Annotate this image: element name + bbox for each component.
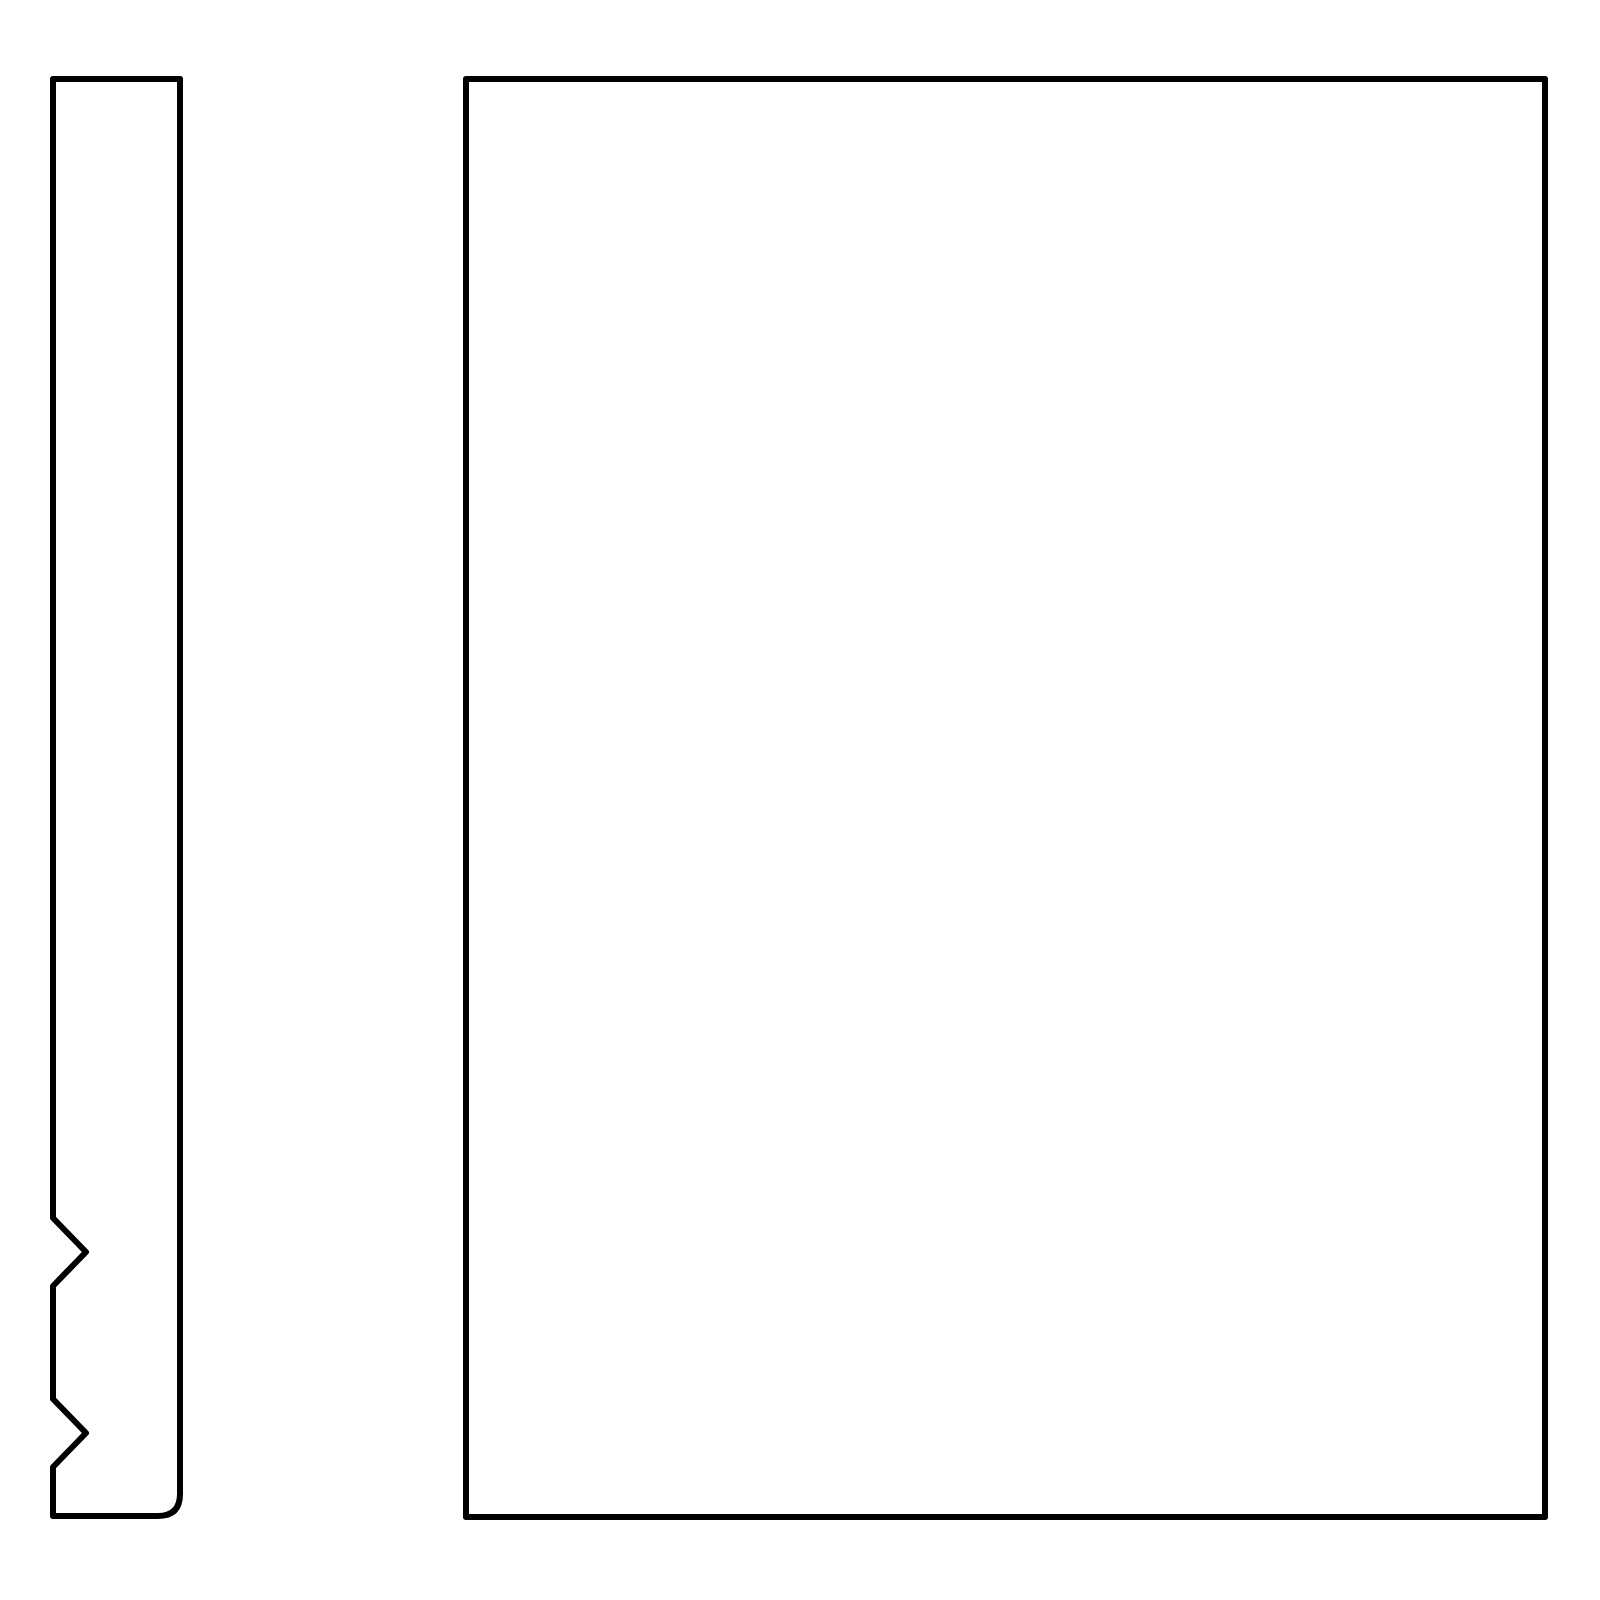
front-face-rectangle-shape xyxy=(466,79,1545,1517)
side-profile-notched-shape xyxy=(53,79,180,1516)
technical-drawing-canvas xyxy=(0,0,1600,1600)
technical-drawing-page xyxy=(0,0,1600,1600)
